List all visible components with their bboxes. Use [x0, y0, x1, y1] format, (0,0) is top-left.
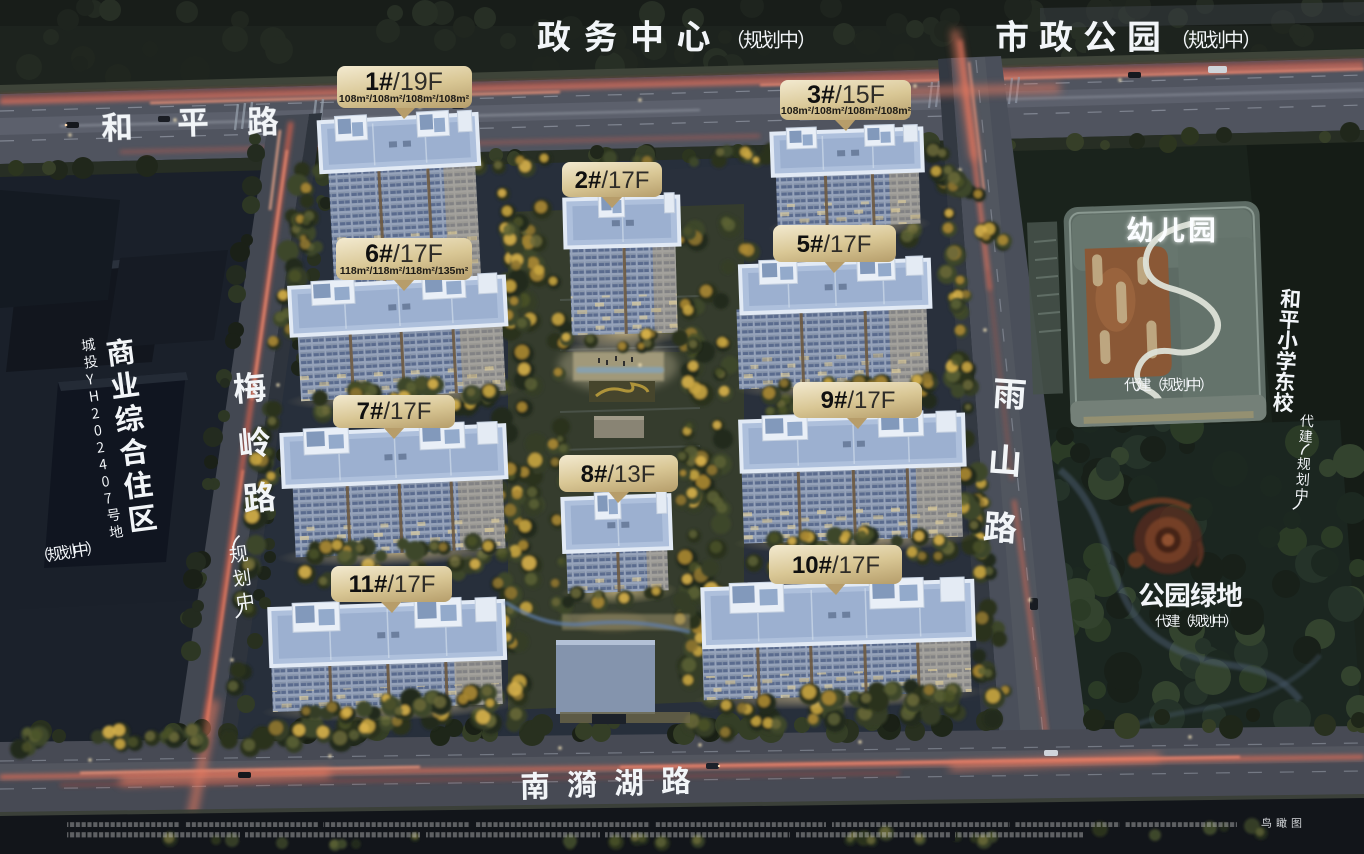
svg-text:9#/17F: 9#/17F [821, 387, 896, 414]
svg-text:1#/19F: 1#/19F [365, 68, 443, 96]
svg-text:10#/17F: 10#/17F [792, 552, 880, 579]
svg-text:108m²/108m²/108m²/108m²: 108m²/108m²/108m²/108m² [781, 105, 912, 117]
svg-text:118m²/118m²/118m²/135m²: 118m²/118m²/118m²/135m² [340, 265, 469, 277]
svg-text:2#/17F: 2#/17F [575, 167, 650, 194]
svg-text:7#/17F: 7#/17F [357, 398, 432, 425]
svg-text:6#/17F: 6#/17F [365, 240, 443, 268]
svg-text:108m²/108m²/108m²/108m²: 108m²/108m²/108m²/108m² [339, 93, 470, 105]
svg-text:8#/13F: 8#/13F [581, 461, 656, 488]
svg-text:5#/17F: 5#/17F [797, 231, 872, 258]
svg-text:11#/17F: 11#/17F [349, 571, 436, 598]
